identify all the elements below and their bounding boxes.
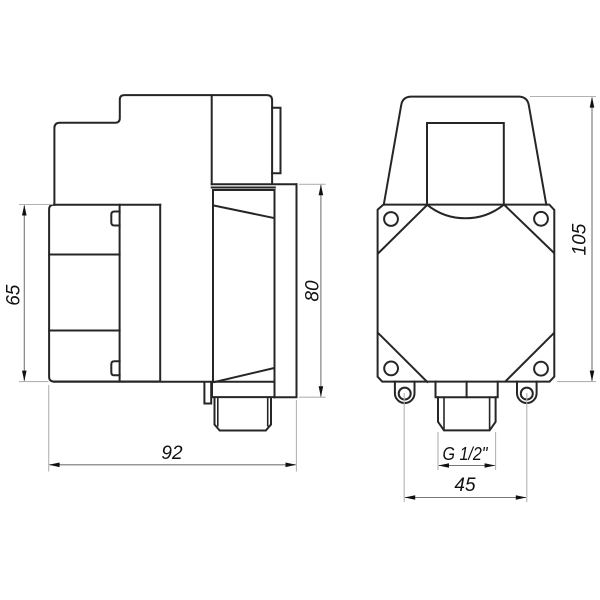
svg-text:92: 92 [161,443,183,464]
svg-text:65: 65 [3,284,24,306]
svg-text:G 1/2": G 1/2" [443,444,489,464]
svg-text:80: 80 [302,280,323,302]
svg-text:105: 105 [570,223,591,255]
svg-text:45: 45 [454,475,476,496]
